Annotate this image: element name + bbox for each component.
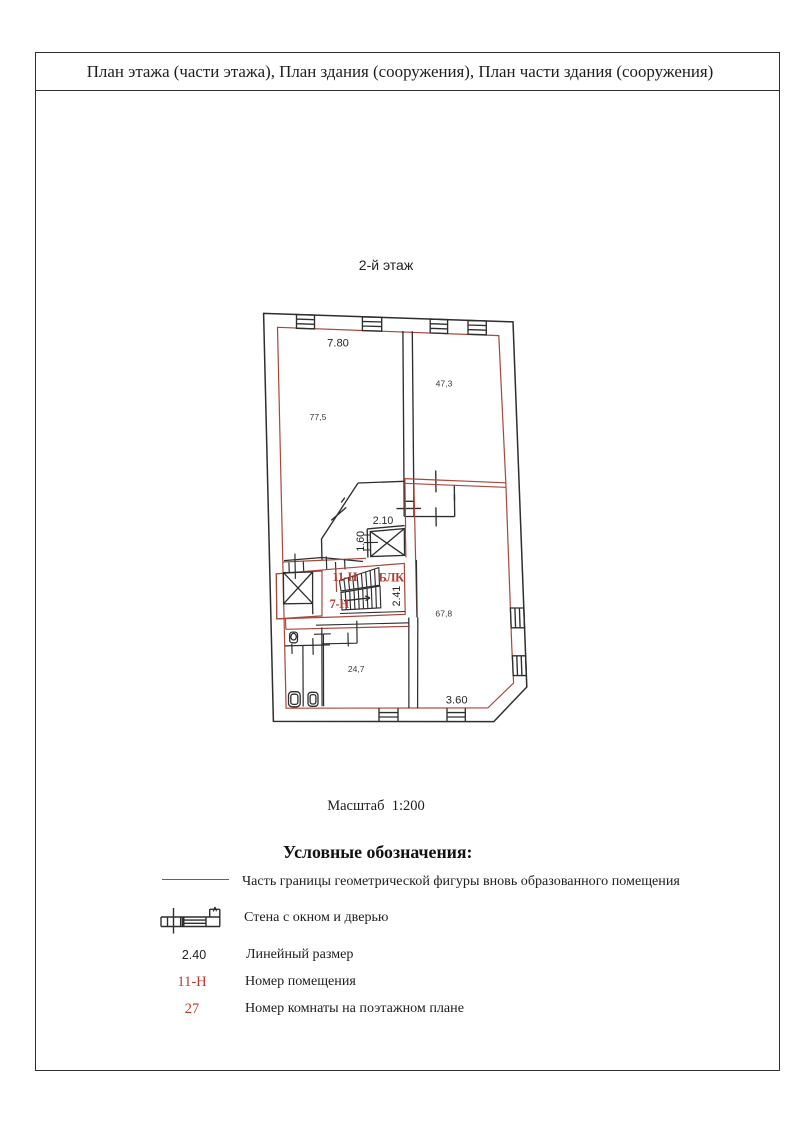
svg-text:11-Н: 11-Н xyxy=(333,570,358,584)
svg-text:3.60: 3.60 xyxy=(446,695,468,707)
svg-text:2.10: 2.10 xyxy=(373,515,394,527)
svg-text:47,3: 47,3 xyxy=(436,379,453,389)
svg-text:24,7: 24,7 xyxy=(348,664,365,674)
svg-text:7.80: 7.80 xyxy=(327,338,349,350)
svg-text:1.60: 1.60 xyxy=(355,531,367,552)
svg-text:2.41: 2.41 xyxy=(391,586,403,607)
svg-text:БЛК: БЛК xyxy=(379,571,405,585)
svg-text:7-Н: 7-Н xyxy=(330,597,350,611)
svg-text:67,8: 67,8 xyxy=(435,609,452,619)
svg-text:77,5: 77,5 xyxy=(310,412,327,422)
